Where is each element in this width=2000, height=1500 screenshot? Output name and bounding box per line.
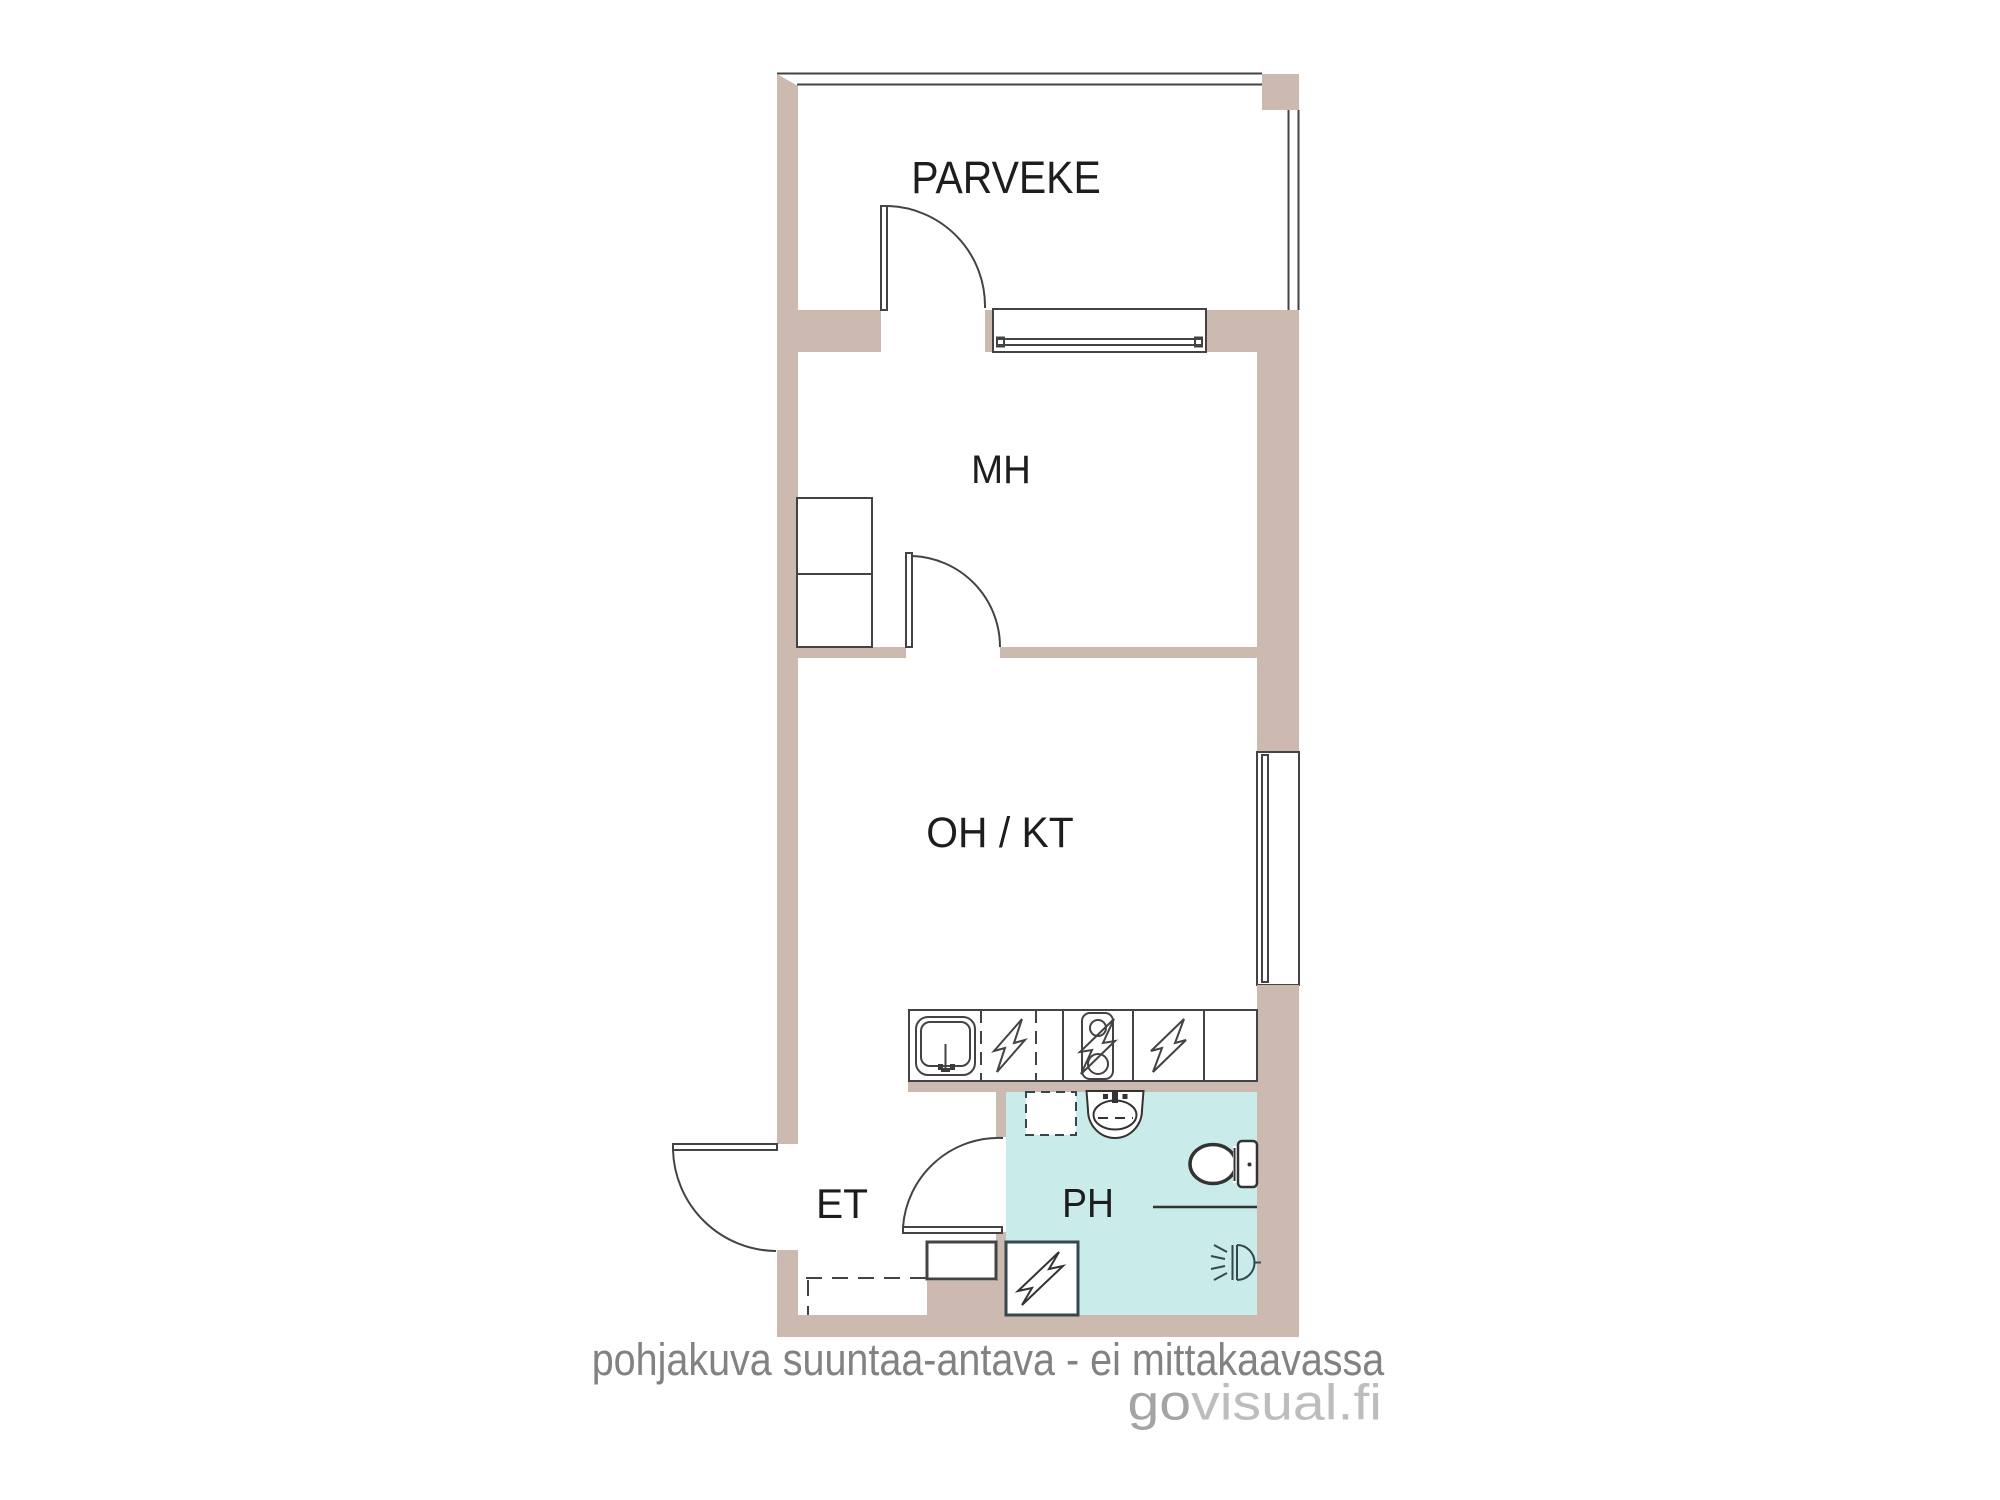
svg-text:OH / KT: OH / KT xyxy=(926,808,1073,856)
svg-text:PARVEKE: PARVEKE xyxy=(911,153,1101,203)
svg-text:MH: MH xyxy=(971,448,1031,492)
svg-text:ET: ET xyxy=(816,1180,868,1227)
svg-text:PH: PH xyxy=(1062,1181,1114,1226)
svg-text:govisual.fi: govisual.fi xyxy=(1127,1375,1382,1431)
